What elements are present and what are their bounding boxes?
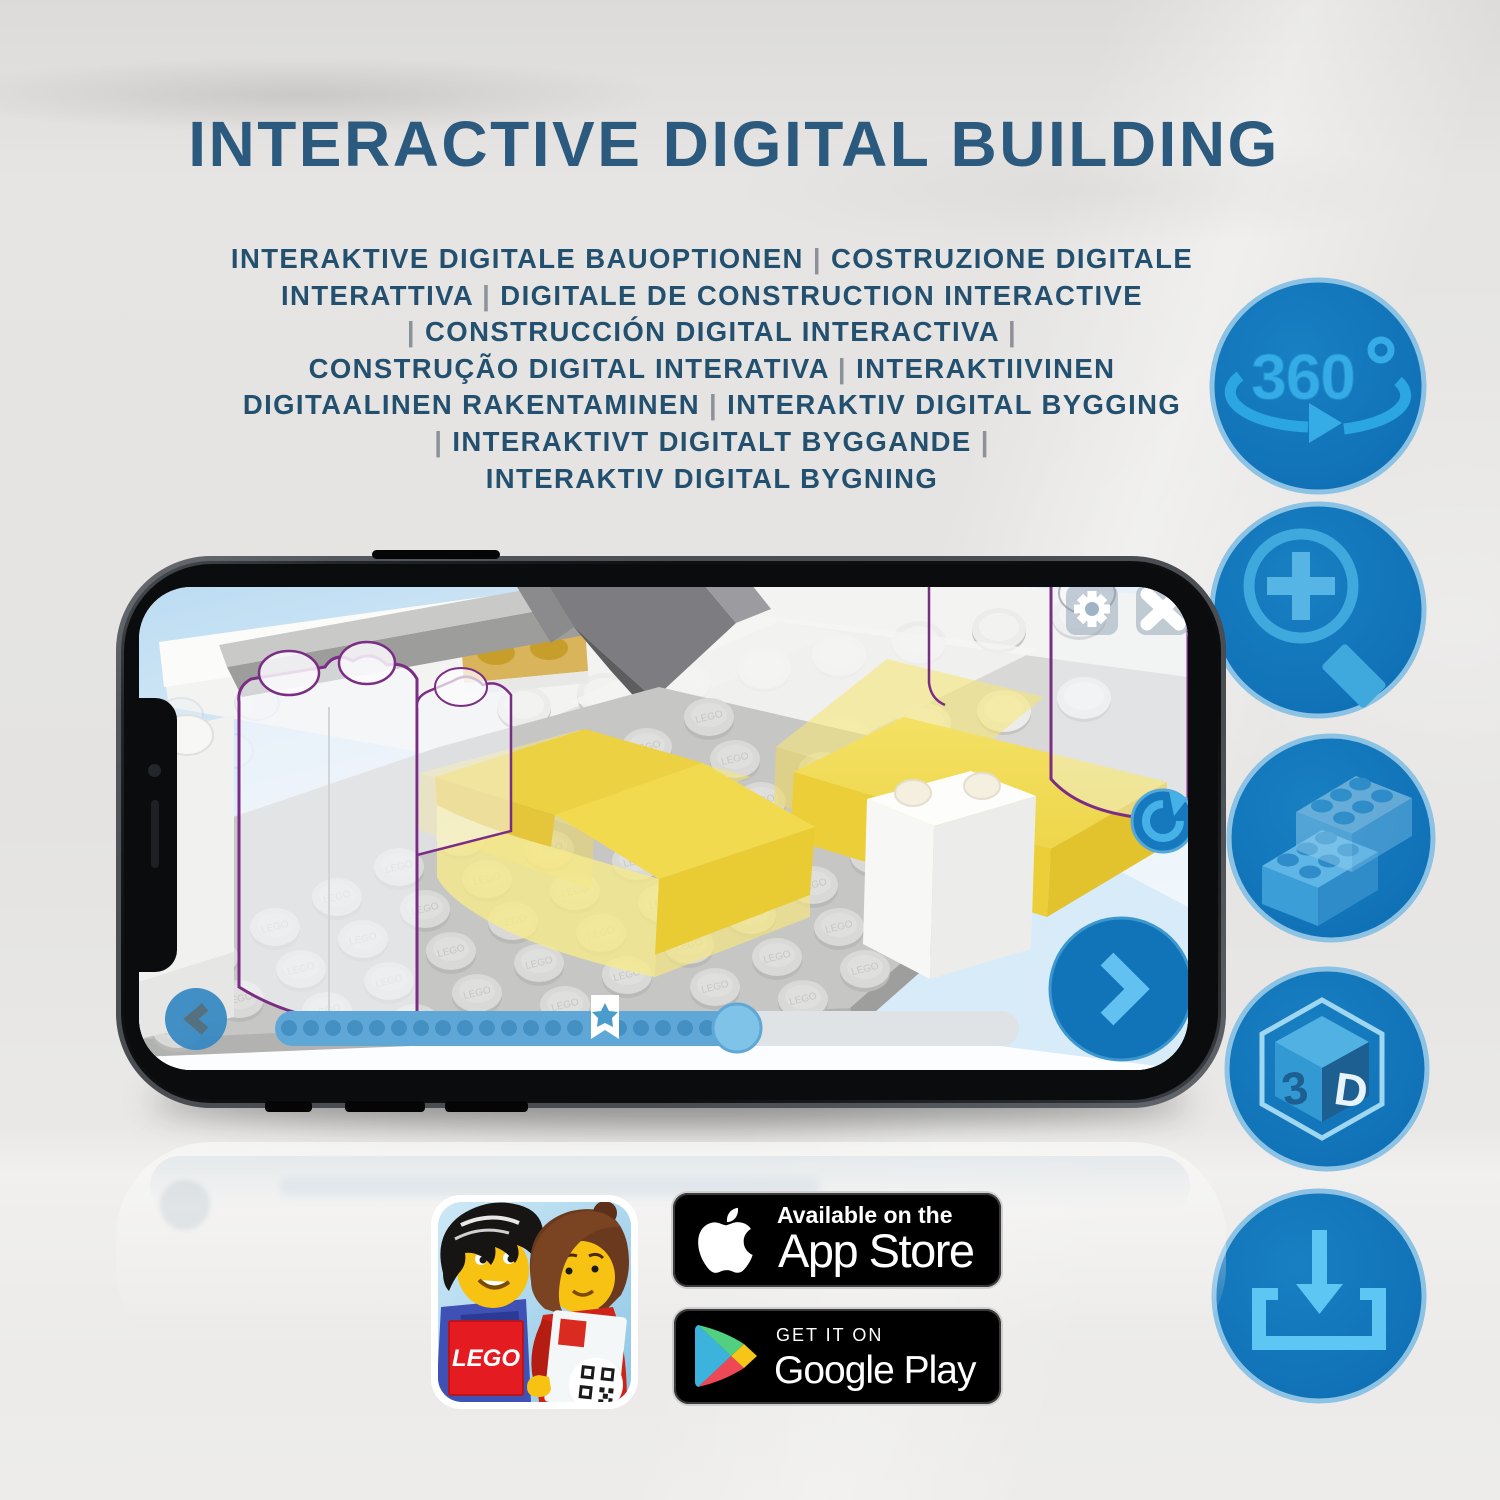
svg-text:GET IT ON: GET IT ON: [776, 1325, 883, 1345]
svg-text:LEGO: LEGO: [452, 1345, 520, 1372]
svg-text:App Store: App Store: [778, 1224, 974, 1277]
svg-text:Google Play: Google Play: [774, 1349, 977, 1392]
svg-text:360: 360: [1251, 341, 1355, 413]
